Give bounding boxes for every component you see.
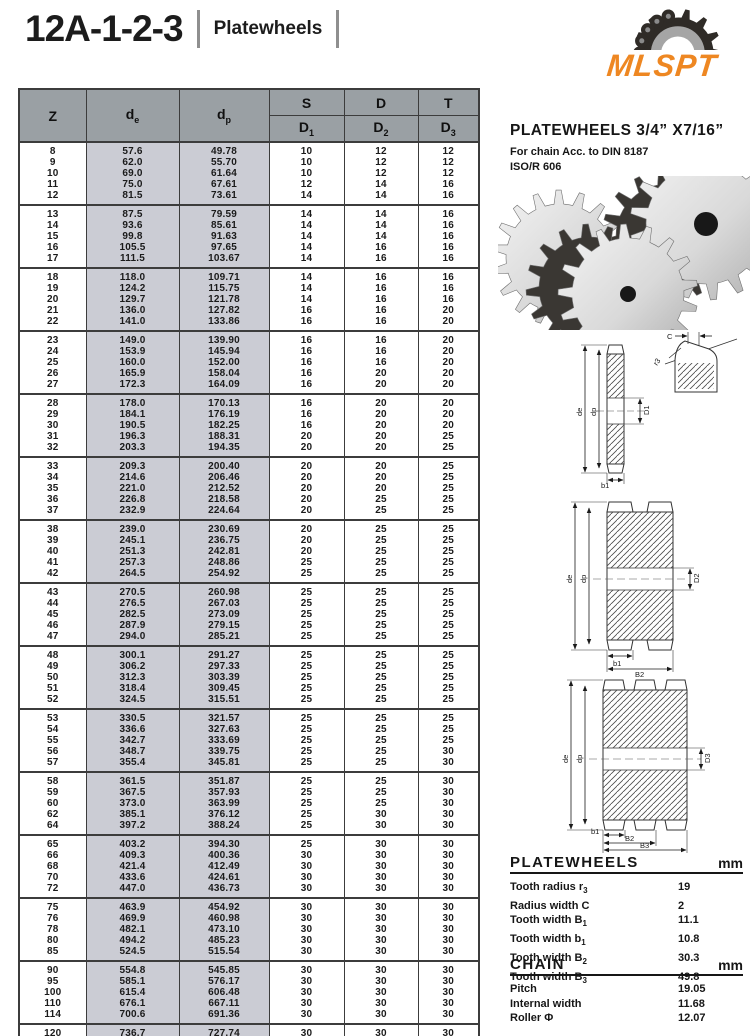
cell-t: 20 xyxy=(418,379,479,394)
table-row: 33209.3200.40202025 xyxy=(19,457,479,472)
cell-z: 55 xyxy=(19,735,86,746)
dim-label-dp: dp xyxy=(589,408,598,416)
table-row: 38239.0230.69202525 xyxy=(19,520,479,535)
cell-t: 30 xyxy=(418,1024,479,1036)
cell-d: 30 xyxy=(344,898,418,913)
cell-z: 57 xyxy=(19,757,86,772)
cell-dp: 188.31 xyxy=(179,431,269,442)
cell-z: 20 xyxy=(19,294,86,305)
cell-dp: 303.39 xyxy=(179,672,269,683)
cell-s: 16 xyxy=(269,420,344,431)
cell-d: 12 xyxy=(344,142,418,157)
cell-z: 24 xyxy=(19,346,86,357)
cell-dp: 248.86 xyxy=(179,557,269,568)
cell-z: 70 xyxy=(19,872,86,883)
table-row: 59367.5357.93252530 xyxy=(19,787,479,798)
cell-t: 25 xyxy=(418,709,479,724)
table-row: 24153.9145.94161620 xyxy=(19,346,479,357)
cell-dp: 388.24 xyxy=(179,820,269,835)
cell-s: 25 xyxy=(269,598,344,609)
cell-de: 245.1 xyxy=(86,535,179,546)
cell-d: 16 xyxy=(344,294,418,305)
table-row: 76469.9460.98303030 xyxy=(19,913,479,924)
col-header-de: de xyxy=(86,89,179,142)
cell-dp: 176.19 xyxy=(179,409,269,420)
cell-t: 25 xyxy=(418,557,479,568)
cell-s: 20 xyxy=(269,535,344,546)
cell-de: 251.3 xyxy=(86,546,179,557)
cell-dp: 315.51 xyxy=(179,694,269,709)
cell-de: 190.5 xyxy=(86,420,179,431)
cell-de: 209.3 xyxy=(86,457,179,472)
cell-s: 16 xyxy=(269,316,344,331)
cell-t: 30 xyxy=(418,861,479,872)
cell-dp: 345.81 xyxy=(179,757,269,772)
cell-s: 16 xyxy=(269,331,344,346)
dim-label-de: de xyxy=(561,755,570,763)
cell-dp: 127.82 xyxy=(179,305,269,316)
cell-z: 53 xyxy=(19,709,86,724)
cell-s: 14 xyxy=(269,268,344,283)
cell-d: 25 xyxy=(344,683,418,694)
cell-de: 160.0 xyxy=(86,357,179,368)
cell-de: 361.5 xyxy=(86,772,179,787)
cell-z: 120 xyxy=(19,1024,86,1036)
cell-t: 25 xyxy=(418,735,479,746)
table-row: 95585.1576.17303030 xyxy=(19,976,479,987)
cell-z: 41 xyxy=(19,557,86,568)
cell-d: 25 xyxy=(344,661,418,672)
dim-label-de: de xyxy=(575,408,584,416)
table-row: 54336.6327.63252525 xyxy=(19,724,479,735)
cell-t: 12 xyxy=(418,168,479,179)
cell-t: 30 xyxy=(418,835,479,850)
cell-dp: 454.92 xyxy=(179,898,269,913)
platewheel-table: Z de dp S D T D1 D2 D3 857.649.781012129… xyxy=(18,88,480,1036)
cell-t: 25 xyxy=(418,494,479,505)
cell-s: 25 xyxy=(269,646,344,661)
cell-de: 184.1 xyxy=(86,409,179,420)
cell-d: 30 xyxy=(344,820,418,835)
cell-s: 25 xyxy=(269,787,344,798)
cell-de: 62.0 xyxy=(86,157,179,168)
table-row: 29184.1176.19162020 xyxy=(19,409,479,420)
cell-dp: 357.93 xyxy=(179,787,269,798)
cell-dp: 339.75 xyxy=(179,746,269,757)
cell-s: 14 xyxy=(269,253,344,268)
cell-d: 20 xyxy=(344,457,418,472)
table-row: 1387.579.59141416 xyxy=(19,205,479,220)
cell-de: 99.8 xyxy=(86,231,179,242)
cell-t: 25 xyxy=(418,620,479,631)
spec-row: Internal width11.68 xyxy=(510,997,743,1012)
chain-spec-rows: Pitch19.05Internal width11.68Roller Φ12.… xyxy=(510,982,743,1026)
chain-spec-unit: mm xyxy=(718,957,743,973)
cell-s: 30 xyxy=(269,998,344,1009)
cell-de: 585.1 xyxy=(86,976,179,987)
dim-label-de: de xyxy=(565,575,574,583)
cell-d: 20 xyxy=(344,379,418,394)
table-row: 90554.8545.85303030 xyxy=(19,961,479,976)
table-row: 27172.3164.09162020 xyxy=(19,379,479,394)
table-row: 72447.0436.73303030 xyxy=(19,883,479,898)
cell-s: 25 xyxy=(269,735,344,746)
table-row: 19124.2115.75141616 xyxy=(19,283,479,294)
cell-z: 47 xyxy=(19,631,86,646)
row-group: 120736.7727.74303030125767.0758.06303030 xyxy=(19,1024,479,1036)
cell-dp: 267.03 xyxy=(179,598,269,609)
cell-t: 16 xyxy=(418,179,479,190)
table-row: 43270.5260.98252525 xyxy=(19,583,479,598)
table-row: 1599.891.63141416 xyxy=(19,231,479,242)
table-row: 78482.1473.10303030 xyxy=(19,924,479,935)
cell-de: 81.5 xyxy=(86,190,179,205)
cell-t: 30 xyxy=(418,746,479,757)
cell-d: 25 xyxy=(344,798,418,809)
cell-s: 25 xyxy=(269,557,344,568)
cell-dp: 285.21 xyxy=(179,631,269,646)
dim-label-B3: B3 xyxy=(640,841,649,850)
dim-label-d1: D1 xyxy=(642,405,651,415)
dim-label-b1: b1 xyxy=(613,659,621,668)
cell-de: 306.2 xyxy=(86,661,179,672)
cell-t: 30 xyxy=(418,976,479,987)
col-header-d1: D1 xyxy=(269,116,344,143)
table-row: 66409.3400.36303030 xyxy=(19,850,479,861)
cell-s: 20 xyxy=(269,442,344,457)
table-row: 75463.9454.92303030 xyxy=(19,898,479,913)
cell-dp: 152.00 xyxy=(179,357,269,368)
cell-dp: 327.63 xyxy=(179,724,269,735)
cell-t: 25 xyxy=(418,583,479,598)
cell-s: 25 xyxy=(269,798,344,809)
cell-d: 25 xyxy=(344,735,418,746)
cell-de: 264.5 xyxy=(86,568,179,583)
cell-z: 38 xyxy=(19,520,86,535)
dim-label-c: C xyxy=(667,332,673,341)
cell-s: 20 xyxy=(269,457,344,472)
cell-z: 54 xyxy=(19,724,86,735)
cell-s: 30 xyxy=(269,961,344,976)
table-row: 50312.3303.39252525 xyxy=(19,672,479,683)
cell-d: 20 xyxy=(344,420,418,431)
cell-t: 25 xyxy=(418,472,479,483)
cell-de: 165.9 xyxy=(86,368,179,379)
cell-dp: 145.94 xyxy=(179,346,269,357)
cell-t: 20 xyxy=(418,420,479,431)
cell-t: 30 xyxy=(418,883,479,898)
chain-spec-title: CHAIN xyxy=(510,956,565,973)
table-row: 1175.067.61121416 xyxy=(19,179,479,190)
cell-de: 153.9 xyxy=(86,346,179,357)
cell-z: 56 xyxy=(19,746,86,757)
cell-s: 25 xyxy=(269,568,344,583)
cell-de: 403.2 xyxy=(86,835,179,850)
cell-z: 44 xyxy=(19,598,86,609)
cell-t: 30 xyxy=(418,913,479,924)
cell-dp: 291.27 xyxy=(179,646,269,661)
spec-value: 2 xyxy=(678,899,743,914)
cell-z: 32 xyxy=(19,442,86,457)
col-header-d3: D3 xyxy=(418,116,479,143)
cell-s: 30 xyxy=(269,872,344,883)
gear-bore-hole xyxy=(694,212,718,236)
drawing-single-sprocket: C r3 D1 dp de b1 xyxy=(557,330,749,488)
row-group: 65403.2394.3025303066409.3400.3630303068… xyxy=(19,835,479,898)
cell-z: 29 xyxy=(19,409,86,420)
cell-z: 48 xyxy=(19,646,86,661)
cell-t: 25 xyxy=(418,535,479,546)
cell-t: 20 xyxy=(418,394,479,409)
table-row: 22141.0133.86161620 xyxy=(19,316,479,331)
page-subtitle: Platewheels xyxy=(214,18,323,40)
cell-de: 324.5 xyxy=(86,694,179,709)
spec-row: Roller Φ12.07 xyxy=(510,1011,743,1026)
cell-de: 287.9 xyxy=(86,620,179,631)
cell-z: 39 xyxy=(19,535,86,546)
spec-label: Roller Φ xyxy=(510,1011,678,1026)
cell-d: 25 xyxy=(344,709,418,724)
cell-de: 149.0 xyxy=(86,331,179,346)
cell-s: 25 xyxy=(269,724,344,735)
cell-d: 25 xyxy=(344,557,418,568)
page-title: 12A-1-2-3 xyxy=(25,8,183,50)
table-row: 35221.0212.52202025 xyxy=(19,483,479,494)
cell-de: 469.9 xyxy=(86,913,179,924)
cell-d: 25 xyxy=(344,609,418,620)
cell-dp: 236.75 xyxy=(179,535,269,546)
cell-d: 30 xyxy=(344,1024,418,1036)
table-row: 25160.0152.00161620 xyxy=(19,357,479,368)
cell-de: 318.4 xyxy=(86,683,179,694)
cell-z: 80 xyxy=(19,935,86,946)
cell-t: 20 xyxy=(418,331,479,346)
table-row: 32203.3194.35202025 xyxy=(19,442,479,457)
cell-dp: 218.58 xyxy=(179,494,269,505)
cell-z: 76 xyxy=(19,913,86,924)
table-row: 36226.8218.58202525 xyxy=(19,494,479,505)
cell-de: 300.1 xyxy=(86,646,179,661)
table-row: 23149.0139.90161620 xyxy=(19,331,479,346)
cell-s: 30 xyxy=(269,924,344,935)
cell-z: 18 xyxy=(19,268,86,283)
cell-d: 25 xyxy=(344,520,418,535)
cell-t: 16 xyxy=(418,242,479,253)
table-row: 31196.3188.31202025 xyxy=(19,431,479,442)
cell-de: 421.4 xyxy=(86,861,179,872)
cell-t: 25 xyxy=(418,672,479,683)
table-row: 44276.5267.03252525 xyxy=(19,598,479,609)
dim-label-d3: D3 xyxy=(703,753,712,763)
spec-value: 12.07 xyxy=(678,1011,743,1026)
cell-de: 433.6 xyxy=(86,872,179,883)
cell-d: 25 xyxy=(344,724,418,735)
table-row: 110676.1667.11303030 xyxy=(19,998,479,1009)
cell-de: 257.3 xyxy=(86,557,179,568)
cell-z: 42 xyxy=(19,568,86,583)
cell-d: 25 xyxy=(344,535,418,546)
cell-dp: 200.40 xyxy=(179,457,269,472)
table-row: 21136.0127.82161620 xyxy=(19,305,479,316)
cell-t: 30 xyxy=(418,924,479,935)
cell-z: 8 xyxy=(19,142,86,157)
cell-s: 25 xyxy=(269,631,344,646)
table-row: 49306.2297.33252525 xyxy=(19,661,479,672)
cell-dp: 485.23 xyxy=(179,935,269,946)
cell-de: 129.7 xyxy=(86,294,179,305)
cell-dp: 254.92 xyxy=(179,568,269,583)
cell-t: 16 xyxy=(418,231,479,242)
cell-z: 26 xyxy=(19,368,86,379)
cell-s: 14 xyxy=(269,242,344,253)
spec-value: 11.68 xyxy=(678,997,743,1012)
cell-dp: 224.64 xyxy=(179,505,269,520)
cell-de: 282.5 xyxy=(86,609,179,620)
cell-dp: 67.61 xyxy=(179,179,269,190)
cell-de: 87.5 xyxy=(86,205,179,220)
cell-de: 409.3 xyxy=(86,850,179,861)
cell-s: 20 xyxy=(269,431,344,442)
cell-dp: 576.17 xyxy=(179,976,269,987)
cell-de: 736.7 xyxy=(86,1024,179,1036)
cell-t: 30 xyxy=(418,961,479,976)
cell-dp: 460.98 xyxy=(179,913,269,924)
cell-d: 25 xyxy=(344,494,418,505)
table-row: 34214.6206.46202025 xyxy=(19,472,479,483)
cell-z: 23 xyxy=(19,331,86,346)
cell-s: 25 xyxy=(269,835,344,850)
cell-s: 25 xyxy=(269,709,344,724)
spec-row: Tooth width B111.1 xyxy=(510,913,743,932)
cell-z: 64 xyxy=(19,820,86,835)
cell-z: 10 xyxy=(19,168,86,179)
cell-t: 25 xyxy=(418,442,479,457)
cell-t: 16 xyxy=(418,283,479,294)
cell-t: 20 xyxy=(418,368,479,379)
cell-z: 85 xyxy=(19,946,86,961)
cell-d: 25 xyxy=(344,746,418,757)
cell-d: 25 xyxy=(344,757,418,772)
cell-s: 30 xyxy=(269,861,344,872)
cell-z: 9 xyxy=(19,157,86,168)
cell-d: 25 xyxy=(344,672,418,683)
cell-dp: 351.87 xyxy=(179,772,269,787)
cell-d: 25 xyxy=(344,620,418,631)
cell-dp: 103.67 xyxy=(179,253,269,268)
table-row: 100615.4606.48303030 xyxy=(19,987,479,998)
table-row: 57355.4345.81252530 xyxy=(19,757,479,772)
platewheels-spec-header: PLATEWHEELS mm xyxy=(510,854,743,874)
cell-de: 178.0 xyxy=(86,394,179,409)
table-row: 80494.2485.23303030 xyxy=(19,935,479,946)
cell-d: 30 xyxy=(344,998,418,1009)
cell-z: 51 xyxy=(19,683,86,694)
cell-d: 12 xyxy=(344,157,418,168)
gear-bore-hole xyxy=(620,286,636,302)
cell-z: 110 xyxy=(19,998,86,1009)
cell-dp: 133.86 xyxy=(179,316,269,331)
cell-z: 36 xyxy=(19,494,86,505)
cell-s: 16 xyxy=(269,394,344,409)
table-row: 962.055.70101212 xyxy=(19,157,479,168)
table-row: 20129.7121.78141616 xyxy=(19,294,479,305)
cell-d: 14 xyxy=(344,179,418,190)
cell-t: 30 xyxy=(418,898,479,913)
table-row: 40251.3242.81202525 xyxy=(19,546,479,557)
row-group: 38239.0230.6920252539245.1236.7520252540… xyxy=(19,520,479,583)
cell-d: 16 xyxy=(344,357,418,368)
cell-t: 30 xyxy=(418,787,479,798)
cell-s: 25 xyxy=(269,683,344,694)
spec-label: Tooth radius r3 xyxy=(510,880,678,899)
cell-de: 276.5 xyxy=(86,598,179,609)
cell-s: 25 xyxy=(269,672,344,683)
cell-d: 25 xyxy=(344,598,418,609)
table-row: 1493.685.61141416 xyxy=(19,220,479,231)
spec-value: 19 xyxy=(678,880,743,899)
table-row: 53330.5321.57252525 xyxy=(19,709,479,724)
cell-dp: 333.69 xyxy=(179,735,269,746)
cell-s: 25 xyxy=(269,620,344,631)
cell-t: 30 xyxy=(418,987,479,998)
cell-dp: 164.09 xyxy=(179,379,269,394)
cell-z: 37 xyxy=(19,505,86,520)
platewheels-spec-title: PLATEWHEELS xyxy=(510,854,639,871)
cell-de: 214.6 xyxy=(86,472,179,483)
cell-d: 20 xyxy=(344,442,418,457)
table-row: 1281.573.61141416 xyxy=(19,190,479,205)
cell-dp: 363.99 xyxy=(179,798,269,809)
cell-s: 14 xyxy=(269,205,344,220)
cell-dp: 279.15 xyxy=(179,620,269,631)
table-row: 41257.3248.86252525 xyxy=(19,557,479,568)
page-header: 12A-1-2-3 Platewheels xyxy=(25,8,339,50)
table-row: 26165.9158.04162020 xyxy=(19,368,479,379)
cell-d: 16 xyxy=(344,283,418,294)
cell-s: 16 xyxy=(269,346,344,357)
table-row: 120736.7727.74303030 xyxy=(19,1024,479,1036)
cell-t: 20 xyxy=(418,305,479,316)
cell-d: 25 xyxy=(344,583,418,598)
cell-de: 447.0 xyxy=(86,883,179,898)
cell-de: 312.3 xyxy=(86,672,179,683)
cell-d: 25 xyxy=(344,772,418,787)
title-divider xyxy=(336,10,339,48)
cell-z: 27 xyxy=(19,379,86,394)
cell-t: 25 xyxy=(418,546,479,557)
cell-z: 45 xyxy=(19,609,86,620)
cell-d: 25 xyxy=(344,646,418,661)
cell-de: 463.9 xyxy=(86,898,179,913)
cell-dp: 49.78 xyxy=(179,142,269,157)
table-row: 51318.4309.45252525 xyxy=(19,683,479,694)
table-row: 58361.5351.87252530 xyxy=(19,772,479,787)
cell-t: 12 xyxy=(418,157,479,168)
cell-t: 25 xyxy=(418,568,479,583)
cell-d: 20 xyxy=(344,483,418,494)
spec-row: Radius width C2 xyxy=(510,899,743,914)
spec-label: Internal width xyxy=(510,997,678,1012)
cell-d: 16 xyxy=(344,331,418,346)
cell-s: 16 xyxy=(269,305,344,316)
cell-z: 58 xyxy=(19,772,86,787)
cell-s: 10 xyxy=(269,168,344,179)
cell-d: 30 xyxy=(344,835,418,850)
cell-s: 30 xyxy=(269,850,344,861)
cell-de: 615.4 xyxy=(86,987,179,998)
spec-label: Tooth width B1 xyxy=(510,913,678,932)
cell-dp: 297.33 xyxy=(179,661,269,672)
